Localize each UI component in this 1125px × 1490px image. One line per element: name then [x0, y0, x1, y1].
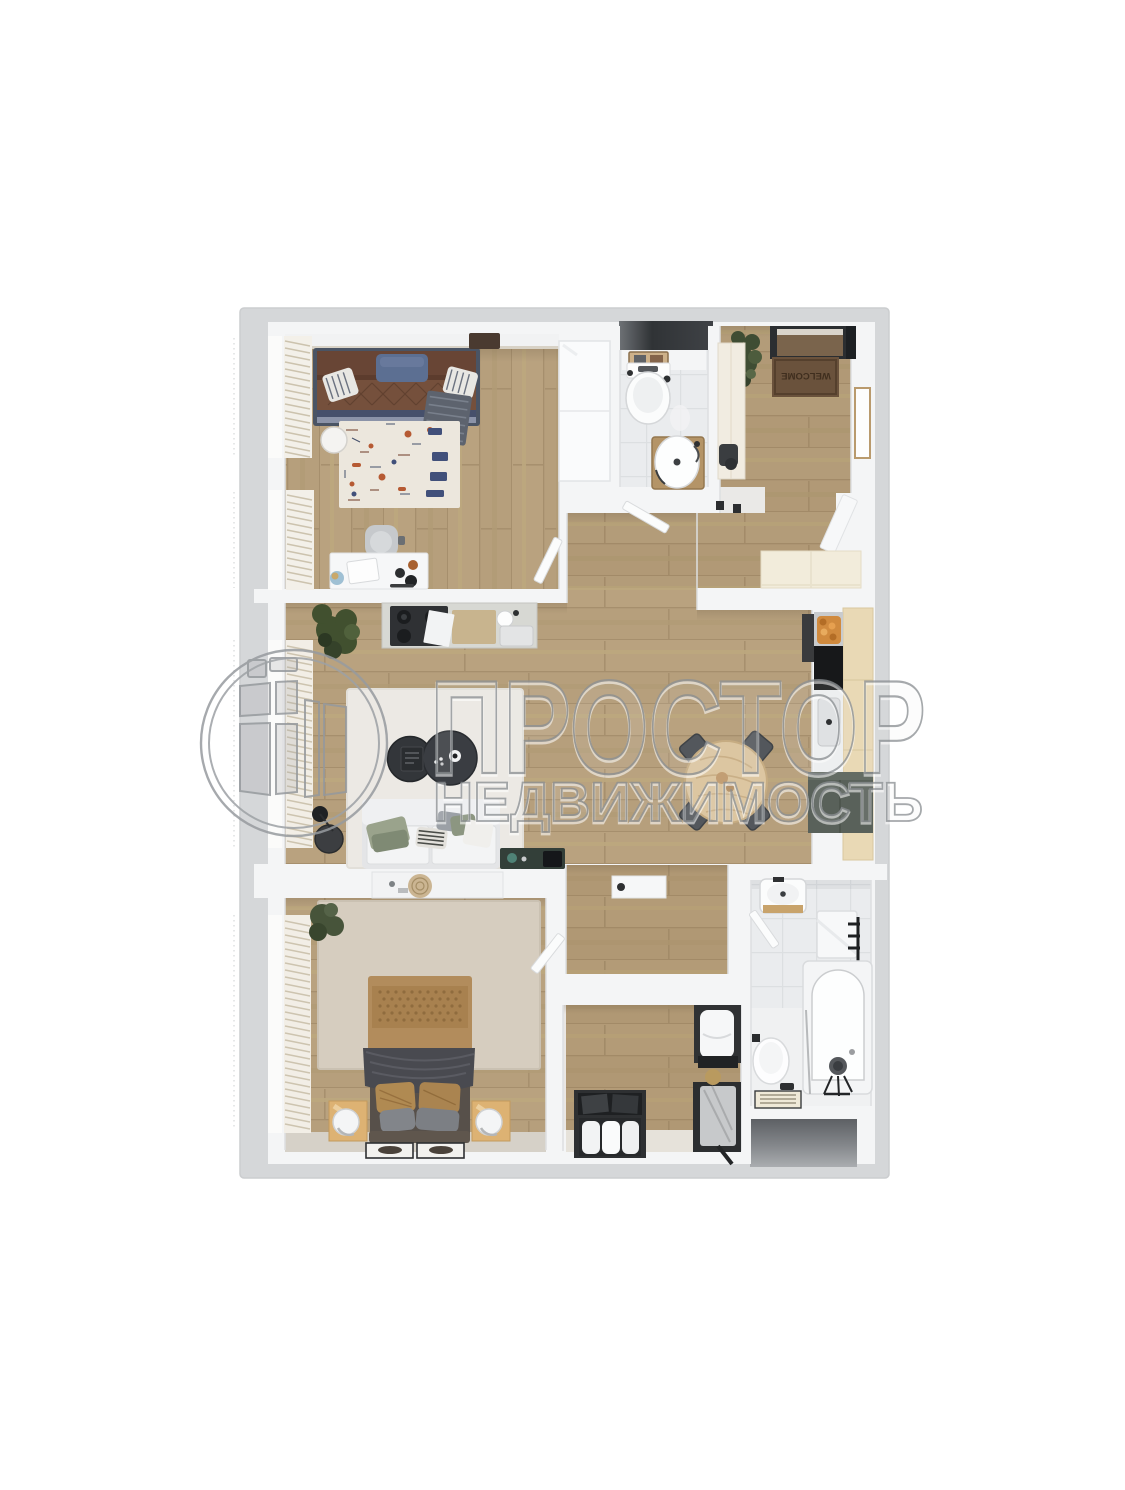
svg-text:WELCOME: WELCOME	[781, 370, 831, 381]
svg-text:НЕДВИЖИМОСТЬ: НЕДВИЖИМОСТЬ	[433, 770, 923, 833]
